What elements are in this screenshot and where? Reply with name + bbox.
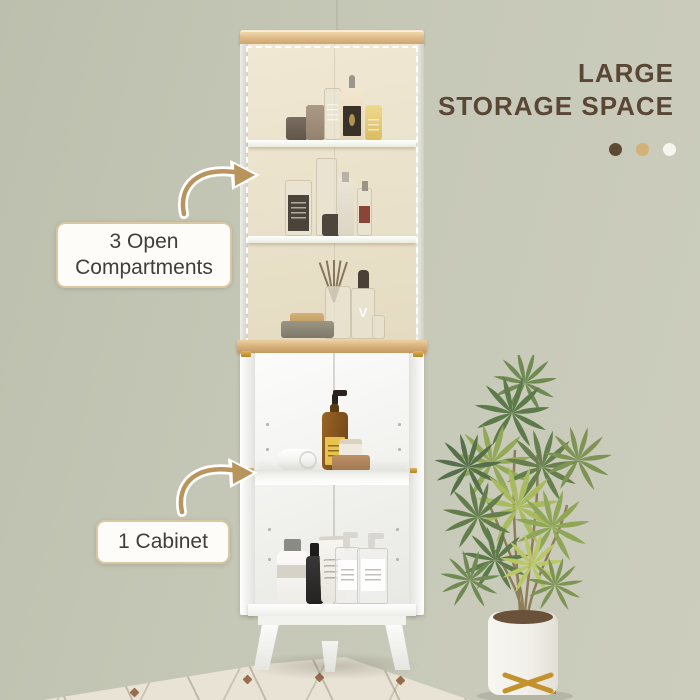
rolled-towel bbox=[277, 449, 318, 471]
door-hinge bbox=[410, 468, 417, 473]
arrow-to-cabinet bbox=[170, 458, 262, 516]
clear-pump-bottle bbox=[357, 548, 388, 604]
white-bottle bbox=[277, 551, 308, 604]
wall-corner-line bbox=[336, 0, 339, 34]
dot-brown bbox=[609, 143, 622, 156]
callout-cabinet: 1 Cabinet bbox=[96, 520, 230, 564]
dot-tan bbox=[636, 143, 649, 156]
potted-plant bbox=[425, 355, 670, 700]
door-hinge bbox=[241, 351, 251, 357]
headline: LARGE STORAGE SPACE bbox=[438, 57, 674, 123]
door-hinge bbox=[413, 351, 423, 357]
pot-soil bbox=[493, 610, 553, 624]
cork-tray bbox=[332, 455, 370, 471]
open-compartments-highlight-outline bbox=[246, 46, 418, 344]
headline-dots bbox=[609, 143, 676, 156]
cabinet-oak-divider bbox=[237, 340, 427, 353]
dot-white bbox=[663, 143, 676, 156]
callout-open-compartments: 3 Open Compartments bbox=[56, 222, 232, 288]
product-showcase-image: V bbox=[0, 0, 700, 700]
plant-foliage bbox=[434, 355, 612, 611]
arrow-to-open-compartments bbox=[172, 160, 264, 218]
headline-line2: STORAGE SPACE bbox=[438, 90, 674, 123]
cabinet-shelf bbox=[255, 470, 409, 485]
cabinet-door-right bbox=[409, 353, 424, 615]
headline-line1: LARGE bbox=[438, 57, 674, 90]
cabinet-bottom-board bbox=[248, 604, 416, 616]
cabinet-apron bbox=[258, 616, 406, 625]
